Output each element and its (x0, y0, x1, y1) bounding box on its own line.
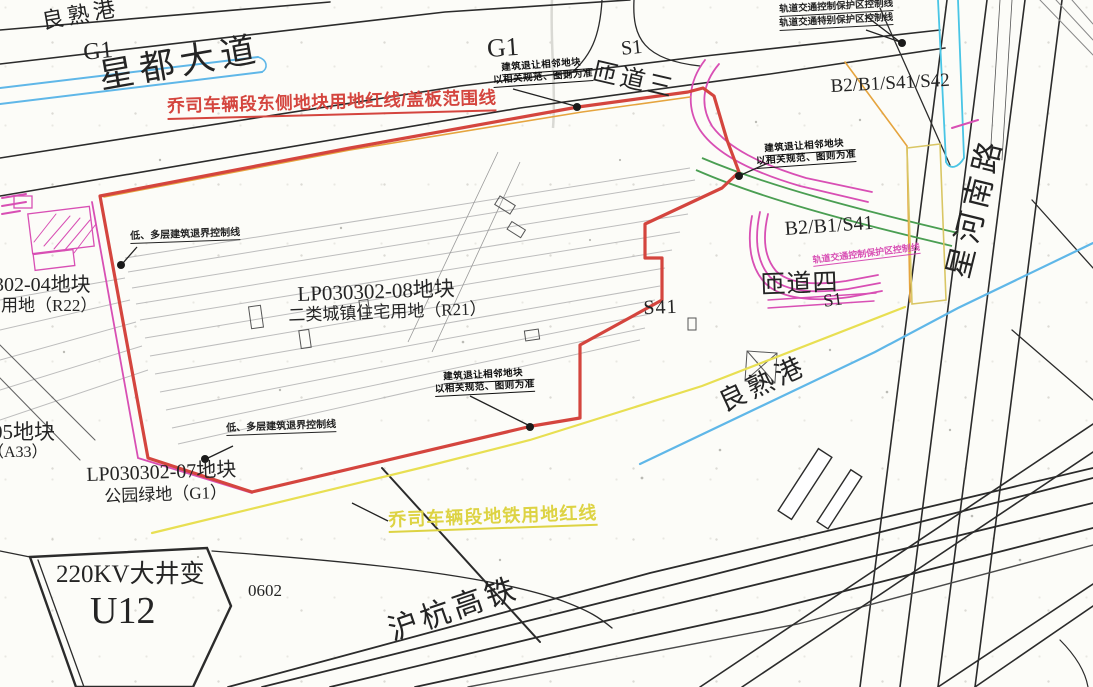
label-parcel-0602: 0602 (248, 581, 282, 600)
label-s1-top: S1 (620, 36, 643, 60)
label-p04-title: 0302-04地块 (0, 274, 91, 296)
pink-hatched-blocks (14, 196, 96, 270)
label-s41: S41 (643, 296, 678, 320)
label-substation-name: 220KV大井变 (56, 561, 205, 589)
planning-map: 良熟港 G1 星都大道 乔司车辆段东侧地块用地红线/盖板范围线 G1 S1 匝道… (0, 0, 1093, 687)
label-p05-use: （A33） (0, 444, 48, 462)
label-p05-title: 05地块 (0, 421, 55, 445)
label-s1-right: S1 (822, 288, 844, 311)
label-substation-code: U12 (90, 590, 155, 633)
label-p04-use: 园用地（R22） (0, 296, 97, 315)
label-g1-mid: G1 (486, 32, 520, 63)
